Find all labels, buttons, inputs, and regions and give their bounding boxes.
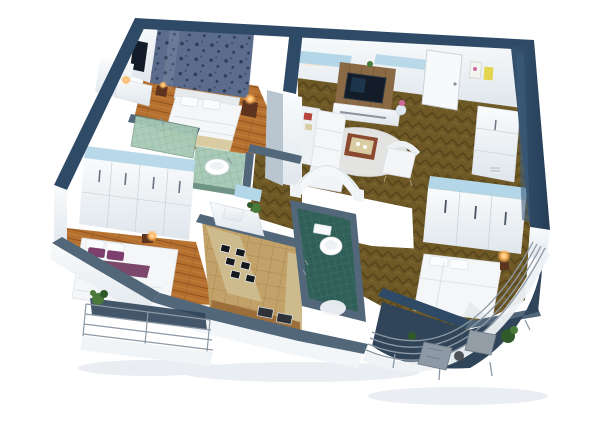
lamp-glow xyxy=(146,230,158,242)
door-handle xyxy=(453,82,456,85)
plant xyxy=(408,332,416,340)
storage-handle xyxy=(495,120,496,130)
pillow xyxy=(429,256,448,267)
flowers xyxy=(399,100,405,106)
bath-mat xyxy=(320,300,346,316)
shadow xyxy=(368,387,548,405)
cup xyxy=(356,142,360,146)
wall-art xyxy=(484,67,494,81)
lamp-glow xyxy=(497,249,511,263)
lamp-glow xyxy=(159,81,167,89)
side-table xyxy=(396,105,406,115)
nightstand xyxy=(500,262,509,270)
tv-screen xyxy=(344,73,386,103)
sink-basin xyxy=(210,162,224,170)
side-table xyxy=(454,351,464,361)
pillow xyxy=(202,99,220,110)
plant xyxy=(100,290,108,298)
storage-unit xyxy=(472,106,520,182)
lamp-glow xyxy=(121,75,131,85)
plant xyxy=(510,326,518,334)
art-flowers xyxy=(473,67,477,71)
island-plant xyxy=(247,202,253,208)
accent-pillow xyxy=(303,112,312,120)
pillow xyxy=(449,259,468,270)
vent-grille xyxy=(489,166,501,174)
front-door xyxy=(422,50,462,110)
accent-pillow xyxy=(305,124,313,131)
plant xyxy=(367,61,373,67)
tv-reflection xyxy=(350,77,366,93)
apartment-svg xyxy=(0,0,600,424)
ground-shadows xyxy=(78,360,548,405)
lamp-glow xyxy=(244,93,256,105)
armchair-seat xyxy=(382,148,416,178)
floor-plan-render xyxy=(0,0,600,424)
cup xyxy=(363,145,367,149)
wall-face xyxy=(283,94,302,188)
arch-pier xyxy=(353,188,364,202)
arch-pier xyxy=(290,184,301,198)
wall-side xyxy=(265,90,283,186)
pillow xyxy=(180,96,198,107)
lounger xyxy=(465,330,496,355)
plant xyxy=(90,290,96,296)
toilet-seat xyxy=(325,240,338,250)
